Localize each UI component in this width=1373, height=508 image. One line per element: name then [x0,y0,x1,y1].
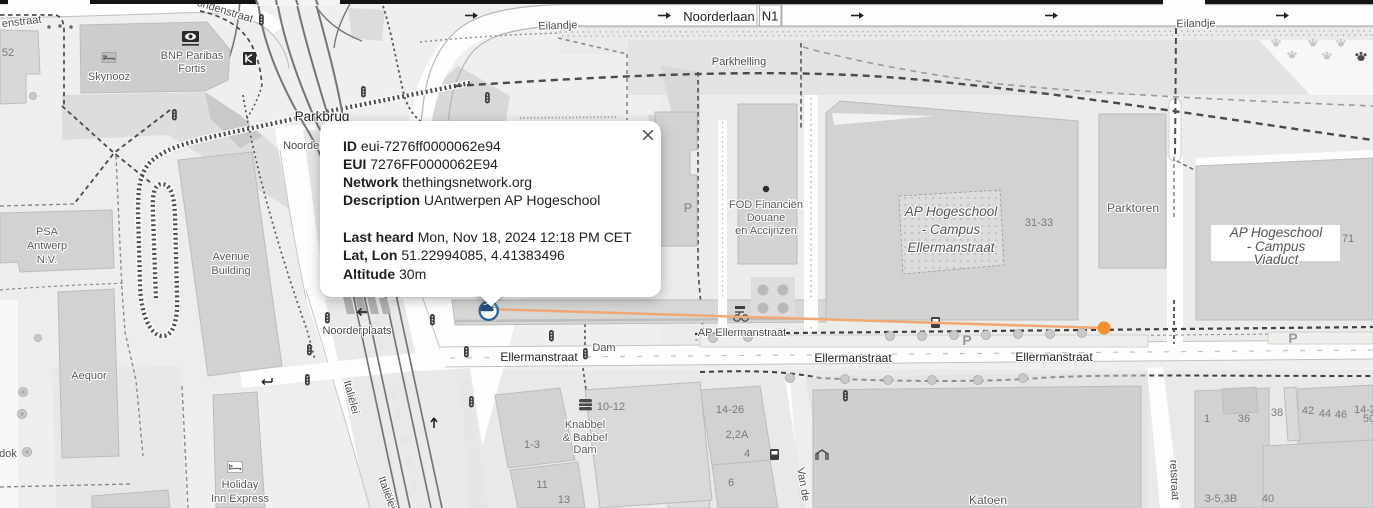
svg-text:P: P [962,332,971,348]
svg-text:Building: Building [211,265,250,277]
svg-text:4: 4 [744,448,750,460]
svg-text:6: 6 [728,477,734,489]
svg-text:1-3: 1-3 [524,439,540,451]
svg-text:13: 13 [558,494,570,506]
svg-text:PSA: PSA [36,226,59,238]
svg-text:14-26: 14-26 [716,404,744,416]
svg-text:& Babbel: & Babbel [563,432,608,444]
svg-text:- Campus: - Campus [922,222,981,237]
svg-text:44: 44 [1319,408,1331,420]
svg-text:46: 46 [1335,409,1347,421]
svg-text:Noorder: Noorder [283,140,323,152]
svg-text:P: P [1288,330,1297,346]
svg-text:Avenue: Avenue [212,251,249,263]
svg-text:Dam: Dam [592,342,615,354]
svg-text:retstraat: retstraat [1167,459,1181,500]
svg-text:11: 11 [536,479,547,491]
svg-text:N.V.: N.V. [37,254,57,266]
svg-text:AP Hogeschool: AP Hogeschool [904,204,999,219]
svg-text:Eilandje: Eilandje [1176,18,1215,31]
svg-text:Ellermanstraat: Ellermanstraat [907,240,995,255]
svg-text:N1: N1 [762,9,779,24]
svg-text:Katoen: Katoen [969,493,1007,507]
svg-text:Viaduct: Viaduct [1254,252,1300,267]
svg-text:Fortis: Fortis [178,63,206,75]
svg-text:1: 1 [1204,413,1210,425]
svg-text:Skynooz: Skynooz [88,71,130,83]
svg-text:en Accijnzen: en Accijnzen [735,225,797,237]
svg-text:14-2: 14-2 [1354,404,1373,416]
svg-text:Noorderplaats: Noorderplaats [322,325,392,337]
svg-text:40: 40 [1262,493,1274,505]
svg-text:AP Hogeschool: AP Hogeschool [1229,225,1324,240]
svg-text:42: 42 [1302,405,1314,417]
svg-text:Aequor: Aequor [71,370,107,382]
svg-text:Knabbel: Knabbel [565,419,605,431]
svg-text:AP Ellermanstraat: AP Ellermanstraat [698,327,786,339]
svg-text:Dam: Dam [573,444,596,456]
svg-text:2,2A: 2,2A [726,429,749,441]
svg-text:P: P [684,200,693,215]
svg-text:Parktoren: Parktoren [1107,201,1159,215]
svg-text:Holiday: Holiday [222,479,259,491]
svg-text:Ellermanstraat: Ellermanstraat [1015,350,1093,364]
svg-text:3-5,3B: 3-5,3B [1205,493,1237,505]
svg-text:Inn Express: Inn Express [211,493,270,505]
svg-text:Parkhelling: Parkhelling [712,56,766,68]
svg-text:36: 36 [1238,413,1250,425]
svg-text:BNP Paribas: BNP Paribas [161,50,224,62]
svg-text:dok: dok [0,448,17,460]
svg-text:52: 52 [2,47,14,59]
svg-text:71: 71 [1342,233,1354,245]
svg-text:Antwerp: Antwerp [27,240,67,252]
svg-text:Noorderlaan: Noorderlaan [683,9,755,24]
svg-text:10-12: 10-12 [597,401,625,413]
svg-text:Eilandje: Eilandje [538,19,578,32]
svg-text:Ellermanstraat: Ellermanstraat [500,350,578,364]
svg-text:38: 38 [1271,407,1283,419]
svg-text:Douane: Douane [747,212,786,224]
svg-text:FOD Financiën: FOD Financiën [729,199,803,211]
svg-text:Ellermanstraat: Ellermanstraat [814,351,892,365]
svg-text:31-33: 31-33 [1025,217,1053,229]
